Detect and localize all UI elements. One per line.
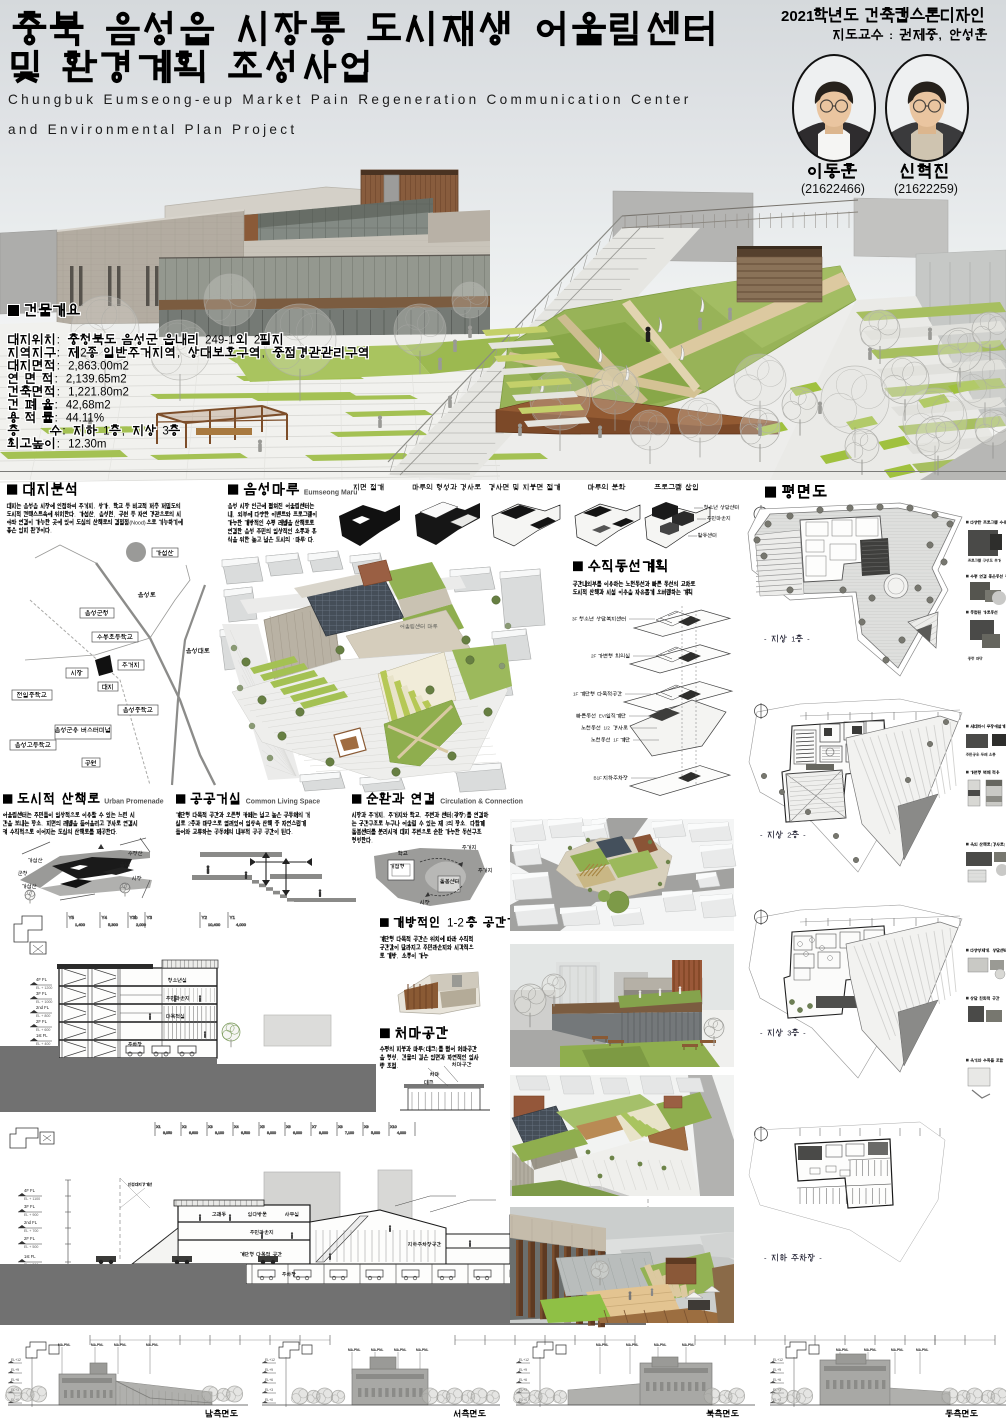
svg-text:X4: X4	[234, 1125, 239, 1129]
svg-text:.: .	[116, 830, 117, 836]
svg-text:X2: X2	[182, 1125, 187, 1129]
svg-text:6,600: 6,600	[189, 1131, 198, 1135]
svg-text:X8: X8	[338, 1125, 343, 1129]
svg-text:Urban Promenade: Urban Promenade	[104, 798, 164, 805]
svg-text:.: .	[397, 1064, 398, 1070]
svg-text:EL+6: EL+6	[773, 1378, 781, 1382]
svg-text:EL + 800: EL + 800	[36, 1014, 50, 1018]
svg-text::: :	[889, 30, 893, 42]
svg-text:EV/: EV/	[599, 714, 607, 719]
svg-text:12.30m: 12.30m	[68, 439, 106, 451]
svg-text::: :	[57, 361, 60, 373]
svg-text:X1: X1	[156, 1125, 161, 1129]
svg-text:Circulation & Connection: Circulation & Connection	[440, 798, 523, 805]
svg-text::: :	[55, 374, 58, 386]
svg-text::: :	[55, 400, 58, 412]
svg-text:42,68m2: 42,68m2	[66, 400, 111, 412]
svg-text:1: 1	[791, 634, 795, 643]
svg-text:2nd FL: 2nd FL	[36, 1005, 50, 1010]
svg-text:EL+12: EL+12	[519, 1358, 529, 1362]
svg-text:': '	[293, 538, 294, 544]
svg-text:.: .	[74, 512, 75, 518]
svg-text:X6: X6	[286, 1125, 291, 1129]
svg-text:.: .	[41, 822, 42, 828]
svg-text:4,000: 4,000	[236, 922, 247, 927]
svg-text:8,000: 8,000	[267, 1131, 276, 1135]
svg-text:8,000: 8,000	[319, 1131, 328, 1135]
svg-text:EL+12: EL+12	[773, 1358, 783, 1362]
svg-text:4F FL: 4F FL	[36, 977, 48, 982]
svg-text:4,000: 4,000	[397, 1131, 406, 1135]
svg-text:2021: 2021	[781, 8, 814, 25]
svg-text:MA-PNL: MA-PNL	[394, 1348, 406, 1352]
svg-text:X3: X3	[208, 1125, 213, 1129]
svg-text:Y5: Y5	[69, 915, 75, 920]
svg-text:MA-PNL: MA-PNL	[916, 1348, 928, 1352]
svg-text:MA-PNL: MA-PNL	[416, 1348, 428, 1352]
svg-text:Common Living Space: Common Living Space	[246, 798, 320, 805]
svg-text:,: ,	[420, 813, 421, 819]
svg-text:(21622259): (21622259)	[894, 182, 958, 196]
svg-text:EL+9: EL+9	[265, 1368, 273, 1372]
svg-text:(: (	[452, 813, 454, 819]
svg-text:,: ,	[262, 348, 265, 360]
svg-text:EL + 500: EL + 500	[24, 1245, 38, 1249]
svg-text:249-1: 249-1	[205, 335, 234, 347]
svg-text:,: ,	[989, 948, 990, 953]
svg-text:Eumseong Maru: Eumseong Maru	[304, 489, 358, 496]
svg-text::: :	[57, 439, 60, 451]
svg-text:EL+6: EL+6	[519, 1378, 527, 1382]
svg-text:(Nood): (Nood)	[129, 520, 145, 526]
svg-text:2: 2	[787, 830, 791, 839]
svg-text:EL+0: EL+0	[265, 1398, 273, 1402]
svg-text:,: ,	[122, 426, 125, 438]
svg-text:1,221.80m2: 1,221.80m2	[68, 387, 129, 399]
svg-text:X9: X9	[364, 1125, 369, 1129]
svg-text:EL + 1000: EL + 1000	[36, 1000, 52, 1004]
svg-text:3F FL: 3F FL	[24, 1204, 36, 1209]
svg-text:MA-PNL: MA-PNL	[146, 1343, 158, 1347]
svg-text::: :	[62, 426, 65, 438]
svg-text:EL+6: EL+6	[265, 1378, 273, 1382]
svg-text:2: 2	[188, 822, 191, 828]
svg-text:and Environmental Plan Project: and Environmental Plan Project	[8, 122, 297, 137]
svg-text:9,050: 9,050	[163, 1131, 172, 1135]
svg-text:MA-PNL: MA-PNL	[58, 1343, 70, 1347]
svg-text:5,300: 5,300	[108, 922, 119, 927]
svg-text:1: 1	[103, 426, 109, 438]
svg-text:,: ,	[114, 512, 115, 518]
svg-text:3: 3	[162, 426, 168, 438]
svg-text:EL+9: EL+9	[773, 1368, 781, 1372]
svg-text:6,500: 6,500	[241, 1131, 250, 1135]
svg-text:5,000: 5,000	[371, 1131, 380, 1135]
svg-text:44.11%: 44.11%	[66, 413, 104, 425]
svg-text:3F: 3F	[572, 617, 578, 622]
svg-text:1/2: 1/2	[604, 726, 611, 731]
svg-text:1,400: 1,400	[75, 922, 86, 927]
svg-text:X7: X7	[312, 1125, 317, 1129]
svg-text:,: ,	[177, 348, 180, 360]
svg-text:MA-PNL: MA-PNL	[348, 1348, 360, 1352]
svg-text:MA-PNL: MA-PNL	[891, 1348, 903, 1352]
svg-text:EL + 1200: EL + 1200	[36, 986, 52, 990]
svg-text:X10: X10	[390, 1125, 397, 1129]
svg-text:Y1: Y1	[230, 915, 236, 920]
svg-text:MA-PNL: MA-PNL	[371, 1348, 383, 1352]
svg-text:Y3b: Y3b	[130, 915, 139, 920]
svg-text:Y3: Y3	[147, 915, 153, 920]
svg-text::: :	[55, 413, 58, 425]
svg-text:X5: X5	[260, 1125, 265, 1129]
svg-text:2nd FL: 2nd FL	[24, 1220, 38, 1225]
svg-text:Y2: Y2	[202, 915, 208, 920]
svg-text:EL+6: EL+6	[11, 1378, 19, 1382]
svg-text:,: ,	[397, 1056, 398, 1062]
svg-text:4F FL: 4F FL	[24, 1188, 36, 1193]
svg-text::: :	[57, 348, 60, 360]
svg-text:.: .	[371, 838, 372, 844]
svg-text:Chungbuk Eumseong-eup Market P: Chungbuk Eumseong-eup Market Pain Regene…	[8, 92, 692, 107]
svg-text::: :	[57, 387, 60, 399]
svg-text:6,000: 6,000	[293, 1131, 302, 1135]
svg-text:B1F: B1F	[594, 776, 603, 781]
svg-text:7,100: 7,100	[345, 1131, 354, 1135]
svg-text:2: 2	[254, 335, 260, 347]
svg-text:.: .	[291, 830, 292, 836]
svg-text:1F: 1F	[573, 692, 579, 697]
svg-text:2,139.65m2: 2,139.65m2	[66, 374, 127, 386]
svg-text:,: ,	[939, 30, 942, 42]
svg-text:,: ,	[94, 504, 95, 510]
svg-text:,: ,	[397, 954, 398, 960]
svg-text:1st FL: 1st FL	[36, 1033, 48, 1038]
svg-text:EL+12: EL+12	[265, 1358, 275, 1362]
svg-text:EL+9: EL+9	[11, 1368, 19, 1372]
svg-text:,: ,	[108, 504, 109, 510]
svg-text:': '	[305, 538, 306, 544]
svg-text:3: 3	[787, 1028, 791, 1037]
svg-text:EL + 600: EL + 600	[36, 1028, 50, 1032]
svg-text:): )	[436, 1047, 438, 1053]
svg-text:,: ,	[383, 813, 384, 819]
svg-text:10,400: 10,400	[208, 922, 221, 927]
svg-text:MA-PNL: MA-PNL	[682, 1343, 694, 1347]
svg-text:EL+9: EL+9	[519, 1368, 527, 1372]
svg-text:EL + 400: EL + 400	[36, 1042, 50, 1046]
svg-text:EL + 1100: EL + 1100	[24, 1197, 40, 1201]
svg-text::: :	[57, 335, 60, 347]
svg-text:2,863.00m2: 2,863.00m2	[68, 361, 129, 373]
svg-text:MA-PNL: MA-PNL	[654, 1343, 666, 1347]
svg-text:MA-PNL: MA-PNL	[626, 1343, 638, 1347]
svg-text:3F FL: 3F FL	[36, 991, 48, 996]
svg-text:MA-PNL: MA-PNL	[864, 1348, 876, 1352]
svg-text:(: (	[423, 1047, 425, 1053]
svg-text:(21622466): (21622466)	[801, 182, 865, 196]
svg-text:MA-PNL: MA-PNL	[836, 1348, 848, 1352]
svg-text:,: ,	[233, 513, 234, 519]
svg-text:9,100: 9,100	[215, 1131, 224, 1135]
svg-text:2F FL: 2F FL	[36, 1019, 48, 1024]
svg-text:,: ,	[94, 512, 95, 518]
svg-text:MA-PNL: MA-PNL	[114, 1343, 126, 1347]
svg-text:1st FL: 1st FL	[24, 1254, 36, 1259]
svg-text:.: .	[465, 822, 466, 828]
svg-text:1-2: 1-2	[447, 916, 464, 929]
svg-text:1F: 1F	[613, 738, 619, 743]
svg-text:3: 3	[446, 822, 449, 828]
svg-text:EL+12: EL+12	[11, 1358, 21, 1362]
svg-text:2: 2	[80, 348, 86, 360]
svg-text:MA-PNL: MA-PNL	[596, 1343, 608, 1347]
svg-text:MA-PNL: MA-PNL	[91, 1343, 103, 1347]
svg-text:EL + 900: EL + 900	[24, 1213, 38, 1217]
svg-text:2F: 2F	[591, 654, 597, 659]
svg-text:2F FL: 2F FL	[24, 1236, 36, 1241]
svg-text:.: .	[50, 529, 51, 535]
svg-text:.: .	[313, 538, 314, 544]
svg-text:Y4: Y4	[102, 915, 108, 920]
svg-text:EL+3: EL+3	[265, 1388, 273, 1392]
svg-text:): )	[464, 813, 466, 819]
svg-text:EL + 700: EL + 700	[24, 1229, 38, 1233]
